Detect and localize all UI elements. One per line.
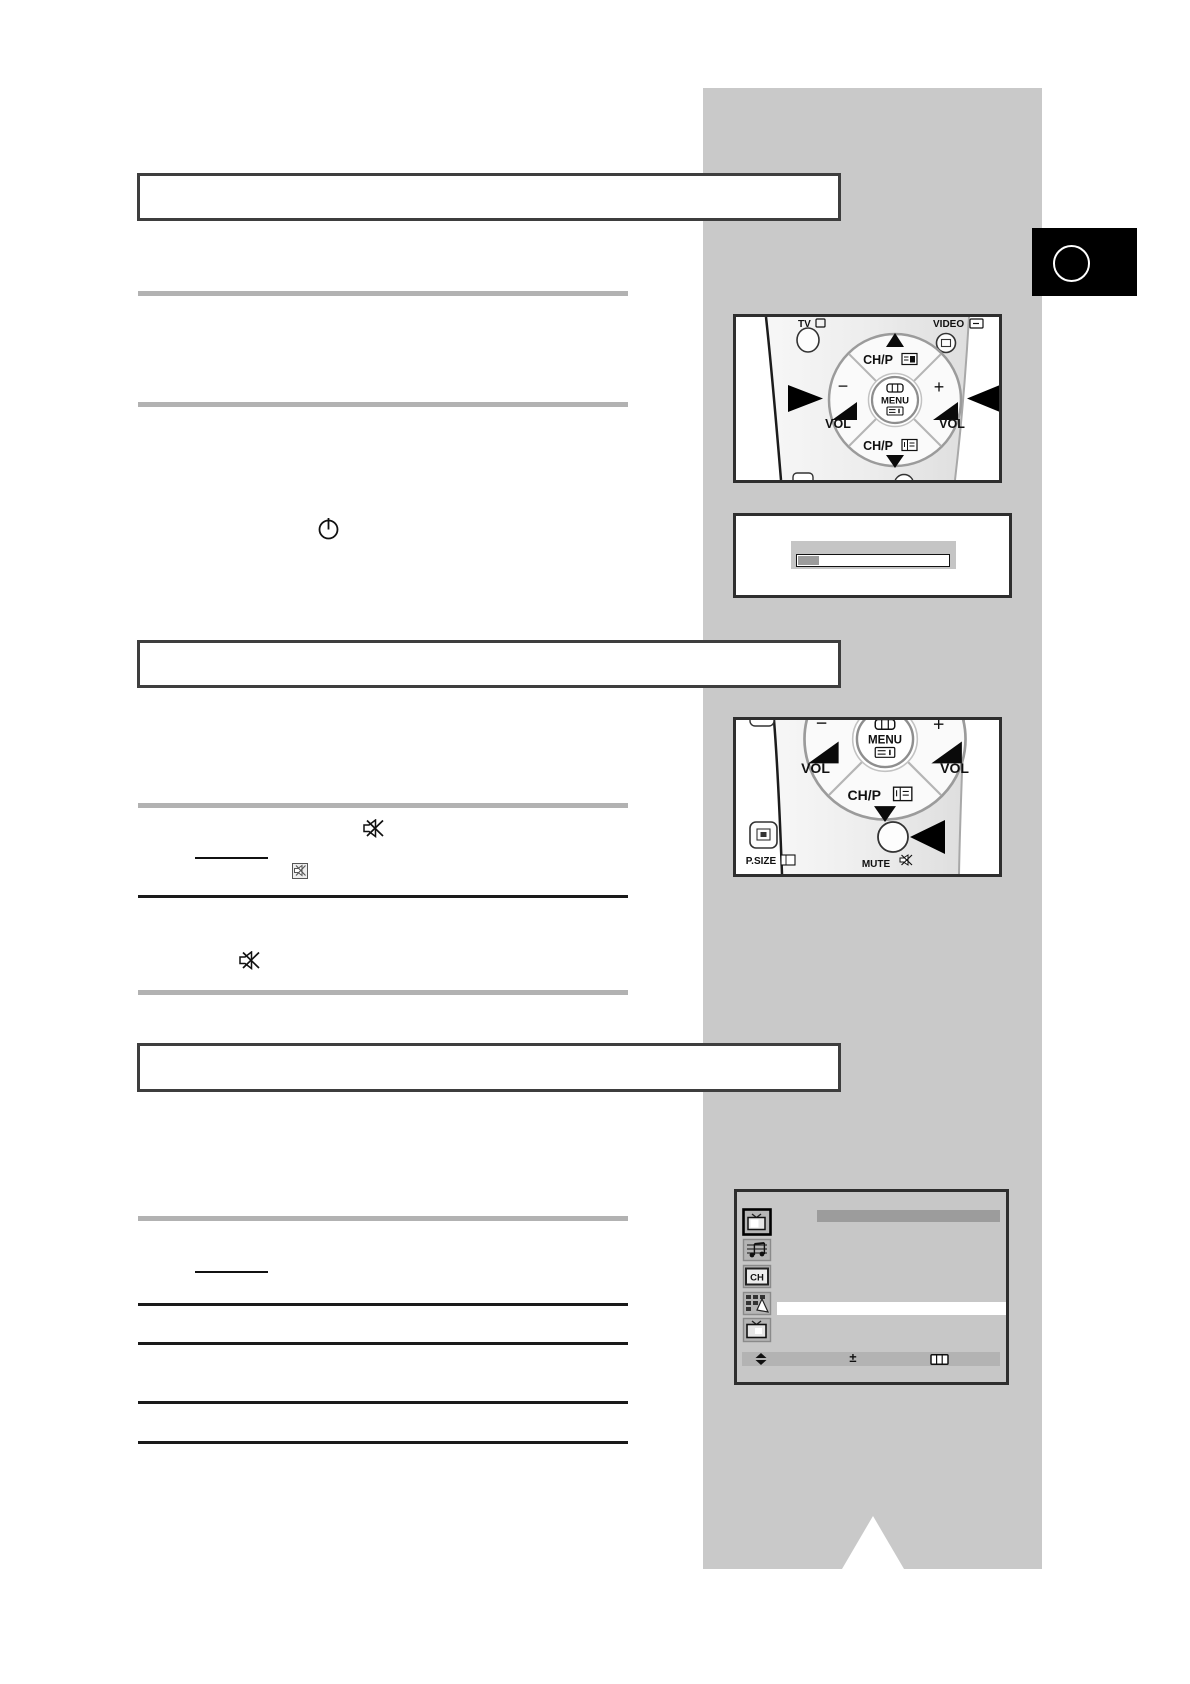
partial-button: [793, 473, 813, 480]
separator-line-gray: [138, 291, 628, 296]
channel-edit-icon: [744, 1293, 771, 1315]
volume-osd-figure: [733, 513, 1012, 598]
separator-line-black: [138, 1401, 628, 1404]
channel-index-icon: [894, 787, 912, 800]
menu-button-label: MENU: [881, 396, 909, 407]
page-number-circle-icon: [1053, 245, 1090, 282]
volume-osd-panel: [791, 541, 956, 569]
manual-page: TV VIDEO CH/P: [0, 0, 1190, 1684]
psize-label: P.SIZE: [746, 856, 777, 867]
volume-minus-sign: −: [816, 720, 827, 734]
volume-plus-label: VOL: [940, 760, 969, 776]
channel-up-label: CH/P: [863, 353, 893, 367]
separator-line-gray: [138, 990, 628, 995]
psize-glyph-icon: [781, 855, 795, 865]
separator-line-gray: [138, 1216, 628, 1221]
menu-button-label: MENU: [868, 734, 902, 746]
channel-down-label: CH/P: [863, 439, 893, 453]
remote-figure-bottom: MENU − VOL + VOL CH/P: [733, 717, 1002, 877]
separator-line-black: [138, 1342, 628, 1345]
mute-speaker-icon: [239, 951, 262, 970]
mute-button: [878, 822, 908, 852]
volume-bar: [796, 554, 950, 567]
press-marker-left-icon: [967, 385, 999, 412]
menu-osd-figure: CH ±: [734, 1189, 1009, 1385]
tv-setup-icon: [744, 1319, 771, 1342]
volume-minus-label: VOL: [801, 760, 830, 776]
separator-line-gray: [138, 402, 628, 407]
channel-index-icon: [902, 440, 917, 451]
remote-bottom-illustration: MENU − VOL + VOL CH/P: [736, 720, 999, 874]
mute-speaker-icon: [363, 819, 386, 838]
tv-button: [797, 328, 819, 352]
section-title-box-3: [137, 1043, 841, 1092]
mute-speaker-boxed-icon: [292, 863, 308, 879]
remote-figure-top: TV VIDEO CH/P: [733, 314, 1002, 483]
video-button-label: VIDEO: [933, 319, 964, 330]
channel-icon: CH: [744, 1266, 771, 1288]
word-underline: [195, 1271, 268, 1273]
separator-line-black: [138, 1441, 628, 1444]
mute-label: MUTE: [862, 859, 891, 870]
osd-title-bar: [817, 1210, 1000, 1222]
teletext-page-icon: [902, 354, 917, 365]
volume-minus-label: VOL: [825, 417, 851, 431]
tv-icon: [744, 1210, 771, 1235]
section-title-box-1: [137, 173, 841, 221]
partial-button: [750, 720, 774, 726]
channel-icon-label: CH: [750, 1273, 764, 1284]
menu-bars-icon: [930, 1354, 950, 1365]
remote-top-illustration: TV VIDEO CH/P: [736, 317, 999, 480]
volume-plus-label: VOL: [939, 417, 965, 431]
osd-selected-row: [777, 1302, 1006, 1315]
standby-power-icon: [317, 516, 340, 541]
separator-line-black: [138, 895, 628, 898]
separator-line-black: [138, 1303, 628, 1306]
osd-icon-column: CH: [742, 1206, 772, 1346]
section-title-box-2: [137, 640, 841, 688]
separator-line-gray: [138, 803, 628, 808]
navigate-updown-icon: [753, 1353, 769, 1365]
osd-nav-bar: ±: [742, 1352, 1000, 1366]
adjust-glyph: ±: [842, 1350, 864, 1366]
volume-plus-sign: +: [933, 720, 944, 735]
sound-icon: [744, 1240, 771, 1261]
word-underline: [195, 857, 268, 859]
volume-plus-sign: +: [934, 377, 945, 397]
volume-bar-fill: [798, 556, 819, 565]
channel-down-label: CH/P: [848, 787, 882, 803]
continued-triangle-icon: [842, 1516, 904, 1569]
volume-minus-sign: −: [838, 376, 849, 396]
page-number-tab: [1032, 228, 1137, 296]
